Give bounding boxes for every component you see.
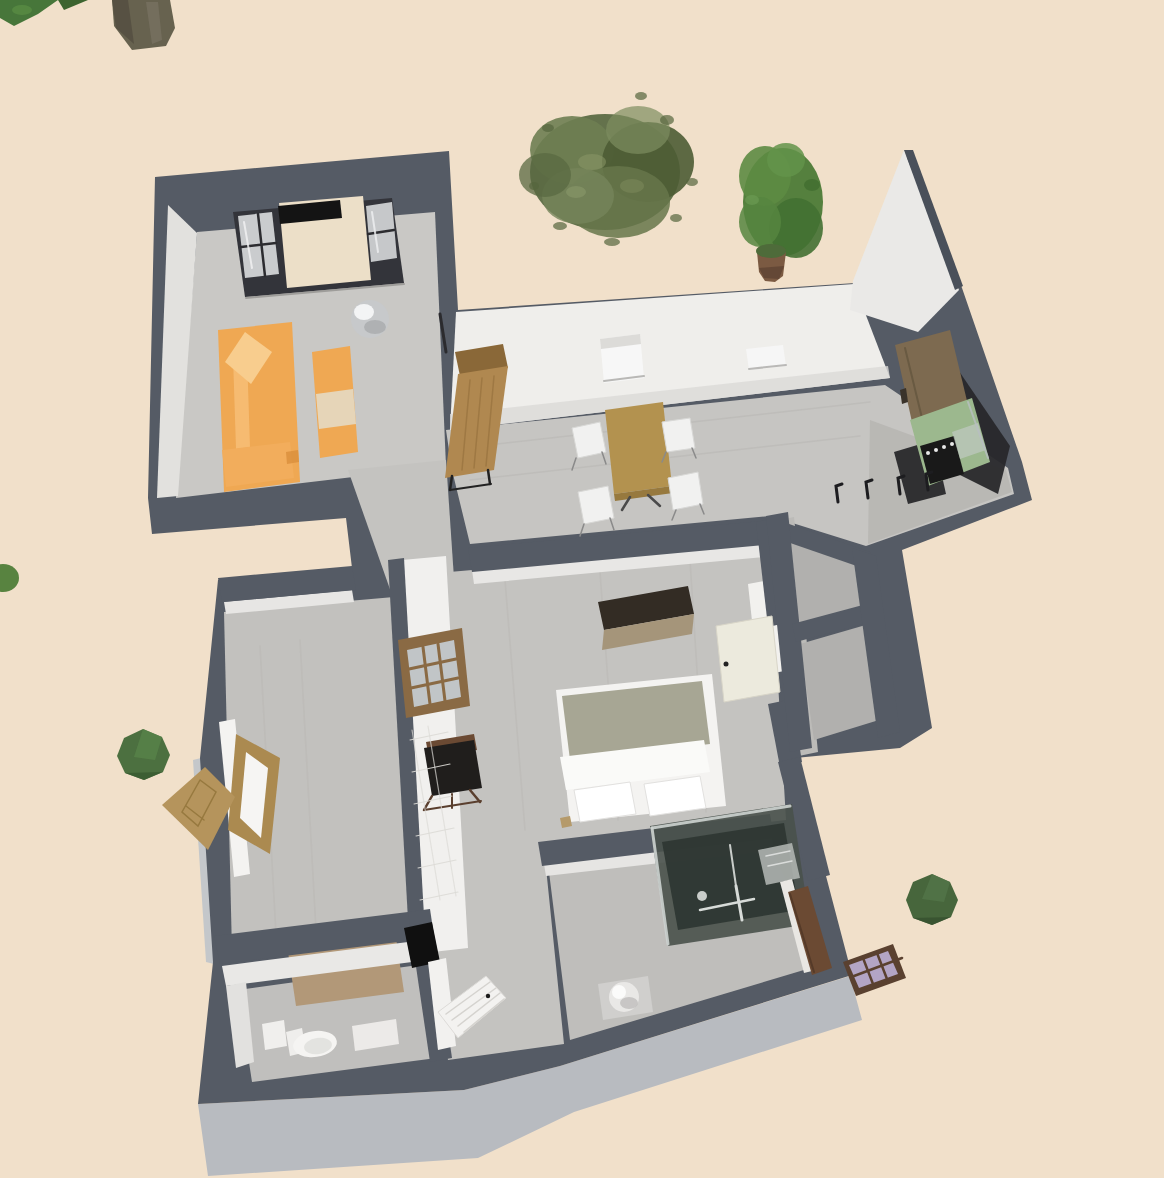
tree-canopy-7 <box>519 153 571 197</box>
stove-knob-2 <box>934 448 938 452</box>
glass-pane-door-glass <box>407 640 461 707</box>
potted-plant-speckle-1 <box>804 179 820 191</box>
tree-speckle-3 <box>686 178 698 186</box>
dining-chair-1 <box>572 422 606 458</box>
dining-chair-4 <box>668 472 703 510</box>
decor-sphere-shade <box>364 320 386 334</box>
sofa-arm-notch <box>286 450 299 464</box>
stove-knob-4 <box>950 442 954 446</box>
tree-speckle-1 <box>542 124 554 132</box>
tree-canopy-6 <box>606 106 670 154</box>
bed-foot <box>560 816 572 828</box>
corner-leaf-dot <box>12 5 32 15</box>
wc-sink <box>262 1020 287 1050</box>
washbasin-shade <box>620 997 638 1009</box>
stove-knob-3 <box>942 445 946 449</box>
scene-viewport[interactable] <box>0 0 1164 1178</box>
plant-pot-top <box>756 244 786 258</box>
stove-knob-1 <box>926 451 930 455</box>
dining-chair-3 <box>662 418 695 452</box>
bench-middle <box>316 389 356 429</box>
tree-speckle-2 <box>660 115 674 125</box>
tree-speckle-8 <box>635 92 647 100</box>
dining-chair-2 <box>578 486 614 524</box>
potted-plant-foliage-5 <box>767 143 805 177</box>
tree-speckle-6 <box>670 214 682 222</box>
bedroom-door-white <box>716 616 780 702</box>
potted-plant-speckle-2 <box>745 195 759 205</box>
tree-light-1 <box>578 154 606 170</box>
floor-plan-svg[interactable] <box>0 0 1164 1178</box>
tree-light-3 <box>566 186 586 198</box>
potted-plant-foliage-4 <box>739 197 781 247</box>
tree-speckle-4 <box>553 222 567 230</box>
dining-table <box>605 402 672 494</box>
decor-sphere-highlight <box>354 304 374 320</box>
tree-speckle-5 <box>604 238 620 246</box>
washbasin-highlight <box>612 985 626 999</box>
tree-speckle-7 <box>529 182 539 190</box>
shower-head-dot <box>697 891 707 901</box>
bedroom-door-handle <box>724 662 729 667</box>
tree-light-2 <box>620 179 644 193</box>
louver-door-handle <box>486 994 490 998</box>
